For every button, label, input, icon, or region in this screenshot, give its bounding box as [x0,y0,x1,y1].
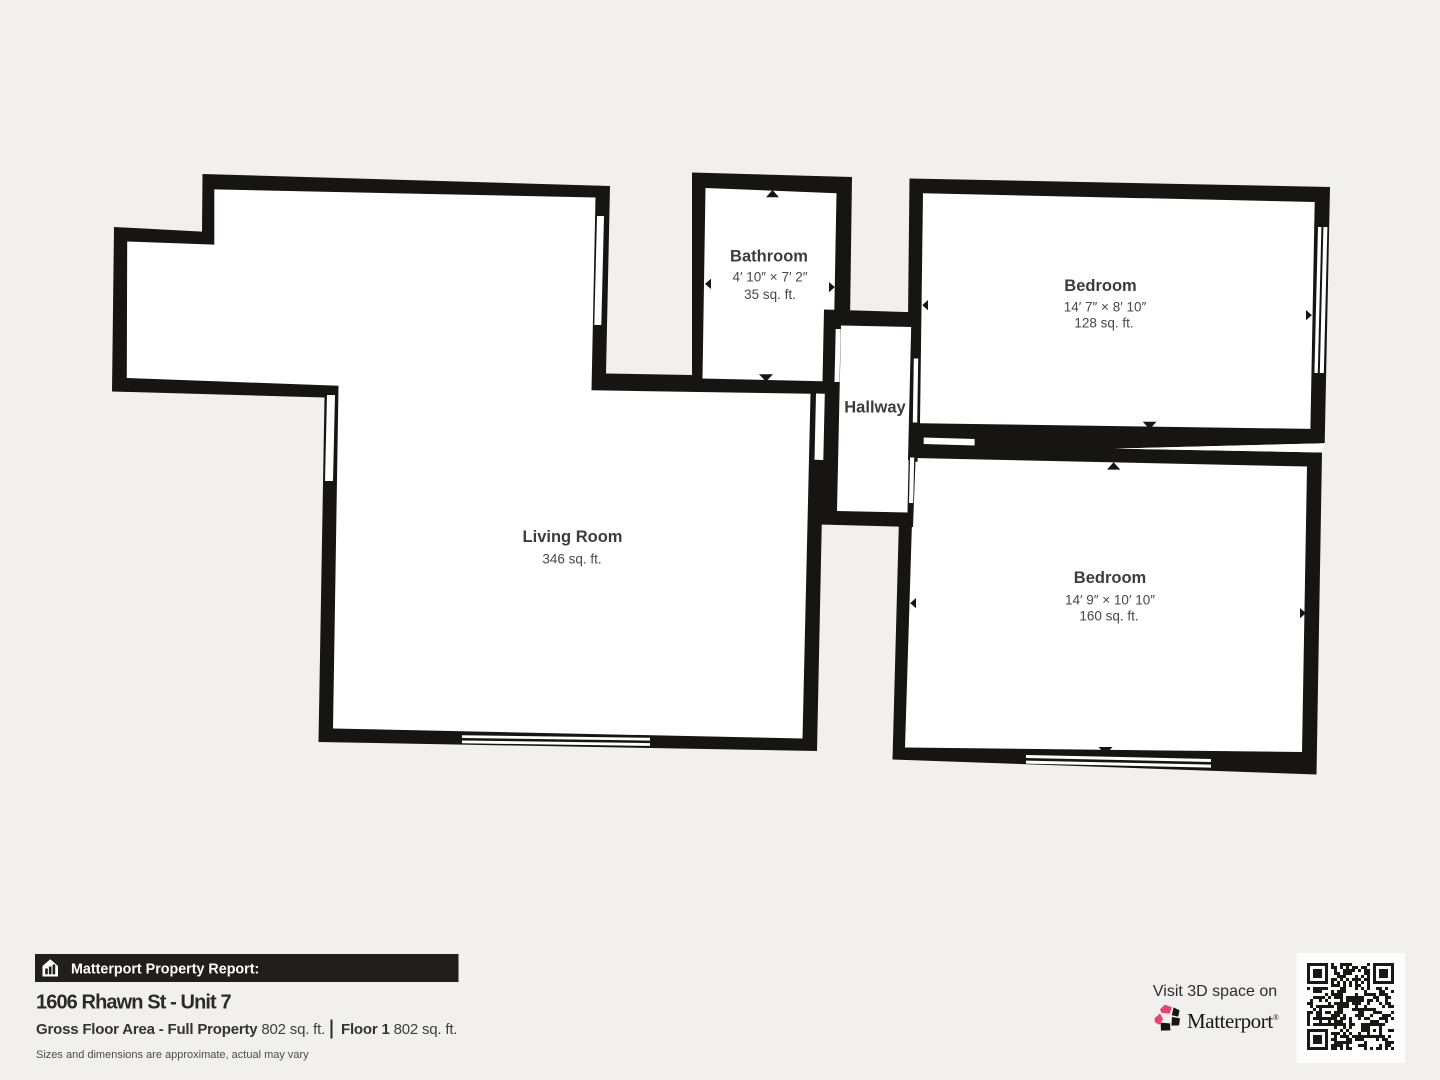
svg-text:346 sq. ft.: 346 sq. ft. [542,552,601,567]
svg-text:Living Room: Living Room [523,528,623,546]
svg-text:Matterport®: Matterport® [1187,1009,1279,1033]
svg-text:Matterport Property Report:: Matterport Property Report: [71,962,259,978]
svg-text:Bedroom: Bedroom [1064,277,1136,295]
svg-text:128 sq. ft.: 128 sq. ft. [1074,316,1133,331]
svg-text:1606 Rhawn St - Unit 7: 1606 Rhawn St - Unit 7 [36,992,231,1014]
svg-text:35 sq. ft.: 35 sq. ft. [744,287,796,302]
svg-text:Bedroom: Bedroom [1074,569,1146,587]
svg-text:Gross Floor Area - Full Proper: Gross Floor Area - Full Property 802 sq.… [36,1021,325,1038]
svg-text:14′ 9″ × 10′ 10″: 14′ 9″ × 10′ 10″ [1065,593,1155,608]
svg-text:Visit 3D space on: Visit 3D space on [1153,983,1277,1000]
svg-text:Hallway: Hallway [844,399,906,417]
svg-text:14′ 7″ × 8′ 10″: 14′ 7″ × 8′ 10″ [1064,300,1147,315]
svg-text:Bathroom: Bathroom [730,248,808,266]
svg-text:Sizes and dimensions are appro: Sizes and dimensions are approximate, ac… [36,1049,309,1061]
svg-text:Floor 1 802 sq. ft.: Floor 1 802 sq. ft. [341,1021,457,1038]
svg-text:160 sq. ft.: 160 sq. ft. [1079,609,1138,624]
svg-text:4′ 10″ × 7′ 2″: 4′ 10″ × 7′ 2″ [732,270,807,285]
